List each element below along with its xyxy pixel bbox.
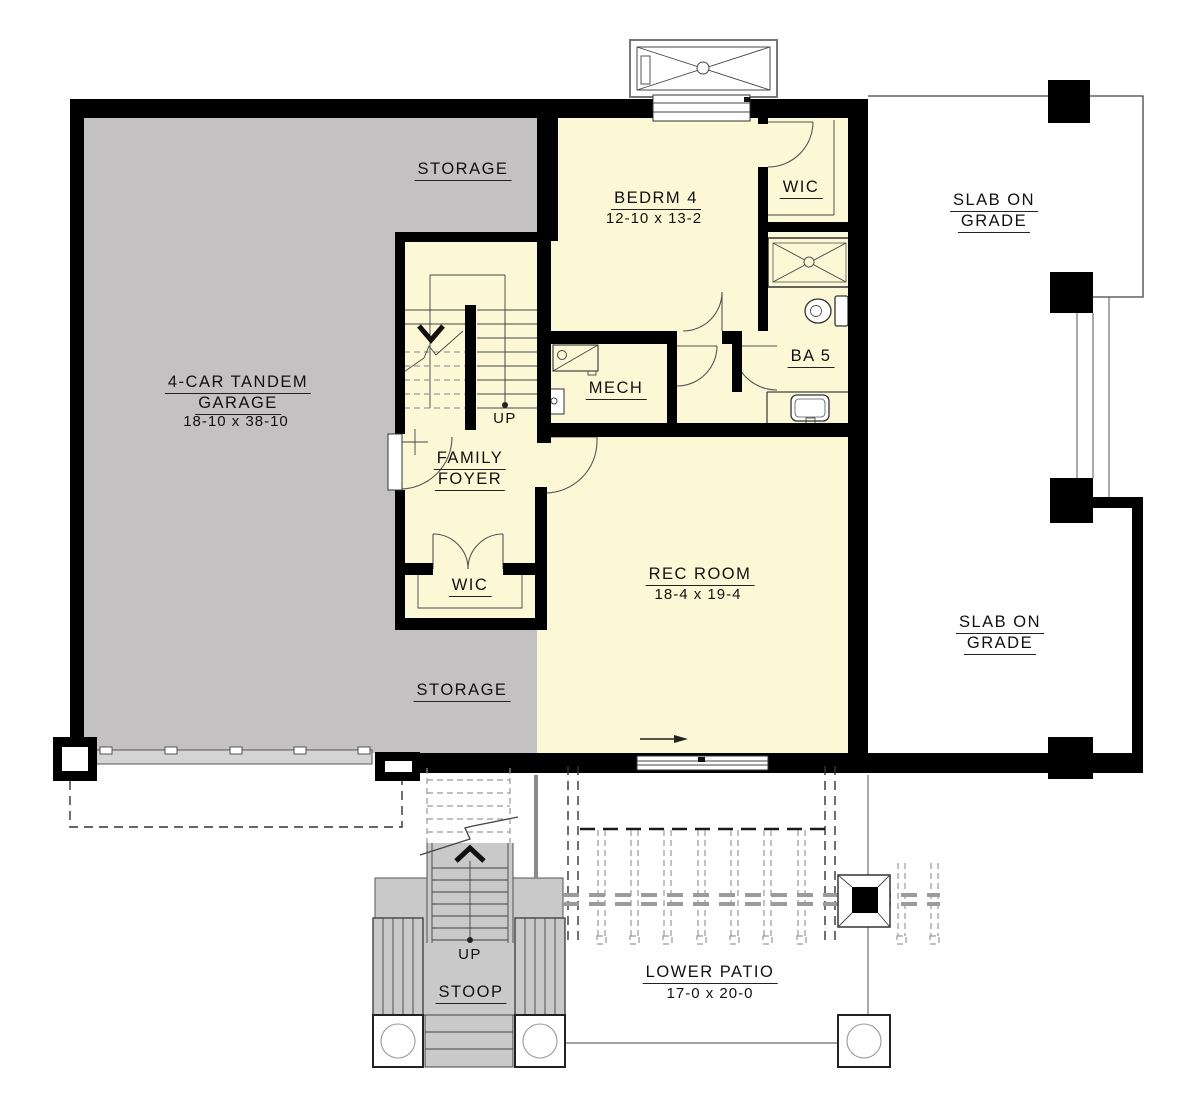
label-bedrm4: BEDRM 4 bbox=[611, 189, 701, 210]
stoop-steps bbox=[425, 1015, 513, 1067]
label-family: FAMILY bbox=[434, 449, 506, 470]
window-well bbox=[630, 40, 777, 97]
stoop-column-left bbox=[373, 918, 423, 1015]
wall-south bbox=[395, 753, 1143, 773]
garage-door-jamb-right bbox=[375, 752, 420, 781]
label-rec-room: REC ROOM bbox=[646, 565, 755, 586]
wall-storage-bedroom bbox=[537, 118, 558, 241]
wall-wic-stub-right bbox=[503, 563, 537, 575]
post-east-upper bbox=[1050, 272, 1093, 313]
label-rec-room-dims: 18-4 x 19-4 bbox=[655, 586, 742, 603]
stoop-column-right bbox=[515, 918, 565, 1015]
label-up-interior: UP bbox=[493, 410, 517, 427]
label-slab-upper-1: SLAB ON bbox=[950, 191, 1038, 212]
wall-stairbox-left-a bbox=[395, 232, 405, 434]
label-wic-lower: WIC bbox=[449, 576, 492, 597]
post-se bbox=[1048, 737, 1093, 779]
wall-hall-b bbox=[722, 331, 742, 344]
stair-run-dot bbox=[502, 402, 508, 408]
label-lower-patio: LOWER PATIO bbox=[643, 963, 778, 984]
wall-hall-a bbox=[537, 331, 677, 344]
sliding-door bbox=[637, 756, 768, 770]
wall-mech-right bbox=[667, 344, 677, 423]
label-up-stoop: UP bbox=[458, 946, 482, 963]
label-slab-lower-1: SLAB ON bbox=[956, 613, 1044, 634]
label-garage-dims: 18-10 x 38-10 bbox=[183, 413, 289, 430]
post-east-lower bbox=[1050, 478, 1093, 523]
label-lower-patio-dims: 17-0 x 20-0 bbox=[667, 985, 754, 1002]
wall-bath5-left bbox=[732, 344, 742, 392]
label-wic-upper: WIC bbox=[780, 178, 823, 199]
wall-bed-bath bbox=[758, 167, 768, 331]
label-storage-top: STORAGE bbox=[415, 160, 512, 181]
label-garage-2: GARAGE bbox=[195, 394, 281, 415]
wall-west bbox=[70, 99, 84, 747]
label-foyer: FOYER bbox=[435, 470, 505, 491]
deck-post bbox=[838, 875, 890, 927]
exterior-staircase bbox=[420, 768, 518, 943]
deck-rim-joists bbox=[568, 766, 835, 940]
label-mech: MECH bbox=[586, 379, 647, 400]
floor-plan-drawing bbox=[0, 0, 1200, 1108]
slab-outline bbox=[868, 96, 1143, 497]
label-garage-1: 4-CAR TANDEM bbox=[165, 373, 311, 394]
wall-stairbox-top bbox=[395, 232, 537, 242]
floor-plan: STORAGE BEDRM 4 12-10 x 13-2 WIC SLAB ON… bbox=[0, 0, 1200, 1108]
wall-wic-shower bbox=[768, 222, 848, 232]
wall-stairbox-left-b bbox=[395, 490, 405, 620]
garage-door-jamb-left bbox=[53, 737, 97, 781]
label-bedrm4-dims: 12-10 x 13-2 bbox=[606, 210, 702, 227]
post-ne bbox=[1048, 80, 1090, 123]
well-drain-icon bbox=[697, 62, 709, 74]
wall-foyer-right bbox=[535, 487, 547, 630]
patio-column-right bbox=[838, 1015, 890, 1067]
driveway-outline bbox=[70, 781, 402, 827]
label-slab-lower-2: GRADE bbox=[964, 634, 1036, 655]
egress-window bbox=[653, 95, 750, 121]
wall-porch-east bbox=[1132, 497, 1143, 773]
label-ba5: BA 5 bbox=[788, 347, 835, 368]
wall-bed-wic-stub bbox=[758, 118, 768, 124]
label-stoop: STOOP bbox=[436, 983, 507, 1004]
wall-rec-north bbox=[537, 423, 868, 437]
wall-wic-stub-left bbox=[400, 563, 433, 575]
wall-stairbox-bottom bbox=[395, 618, 537, 630]
label-slab-upper-2: GRADE bbox=[958, 212, 1030, 233]
garage-foyer-door-leaf bbox=[388, 434, 402, 490]
label-storage-bottom: STORAGE bbox=[414, 681, 511, 702]
wall-stair-stub bbox=[465, 305, 476, 430]
